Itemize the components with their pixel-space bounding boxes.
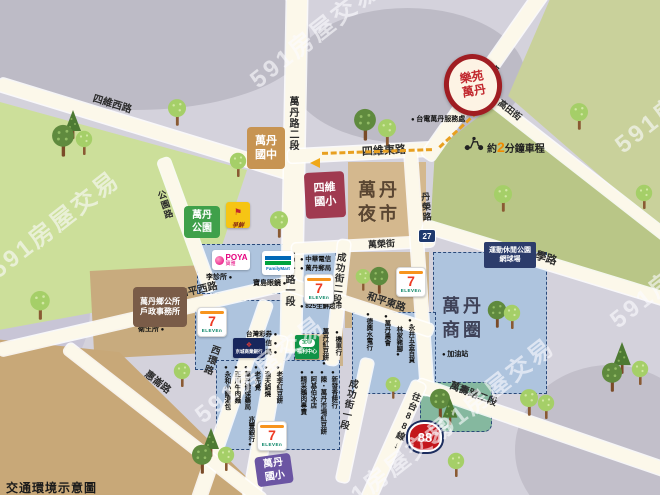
sports-park-line1: 運動休閒公園 bbox=[484, 246, 536, 255]
travel-time-minutes: 2 bbox=[497, 139, 505, 155]
township-office-line1: 萬丹鄉公所 bbox=[133, 297, 187, 307]
poi-yonghe-dumplings: 永和小籠湯包 bbox=[222, 365, 230, 410]
map-title: 交通環境示意圖 bbox=[6, 479, 97, 495]
tree-icon bbox=[536, 394, 556, 420]
township-office-badge: 萬丹鄉公所 戶政事務所 bbox=[133, 287, 187, 327]
poi-gas-station: 加油站 bbox=[442, 351, 468, 359]
poi-clinic-li: 李診所 bbox=[206, 274, 232, 282]
flag-icon bbox=[234, 202, 242, 220]
tree-icon bbox=[384, 376, 402, 400]
county-route-27-shield: 27 bbox=[418, 229, 436, 243]
tree-icon bbox=[216, 446, 236, 472]
poi-825-fresh-market: 825生鮮超市 bbox=[300, 303, 342, 311]
seven-eleven-text: ELEVEn bbox=[401, 288, 422, 293]
poya-circle-icon bbox=[215, 256, 224, 265]
familymart-text: FamilyMart bbox=[266, 266, 290, 271]
sihwei-elem-line2: 國小 bbox=[305, 194, 346, 210]
travel-time-label: 約2分鐘車程 bbox=[487, 139, 545, 155]
seven-eleven-text: ELEVEn bbox=[262, 442, 283, 447]
seven-eleven-text: ELEVEn bbox=[202, 328, 223, 333]
tree-icon bbox=[446, 452, 466, 478]
sihwei-elementary-badge: 四維 國小 bbox=[304, 171, 346, 219]
tree-icon bbox=[228, 152, 248, 178]
junior-high-line1: 萬丹 bbox=[247, 134, 285, 148]
poi-chen-market-redbean-cake: 陳‧萬丹市場紅豆餅 bbox=[318, 370, 326, 435]
sushi-express-logo: 爭鮮 bbox=[226, 202, 250, 228]
pxmart-logo: 全聯 福利中心 bbox=[295, 335, 319, 359]
poi-health-center: 衛生所 bbox=[138, 326, 164, 334]
seven-eleven-text: ELEVEn bbox=[309, 295, 330, 300]
seven-number: 7 bbox=[407, 275, 415, 288]
township-office-line2: 戶政事務所 bbox=[133, 307, 187, 317]
travel-time-suffix: 分鐘車程 bbox=[505, 144, 545, 155]
poi-wandan-redbean-cake: 萬丹紅豆餅 bbox=[320, 328, 328, 367]
sports-park-badge: 運動休閒公園 網球場 bbox=[484, 242, 536, 268]
tree-icon bbox=[440, 398, 460, 426]
junior-high-line2: 國中 bbox=[247, 148, 285, 162]
poi-hardware-store: 永井五金百貨 bbox=[406, 318, 414, 363]
bank-text: 京城商業銀行 bbox=[236, 349, 263, 355]
seven-number: 7 bbox=[208, 315, 216, 328]
poi-fisherman-noodles: 漁夫鍋燒 bbox=[262, 365, 270, 397]
poi-zhengchuan-beef-noodles: 正川牛肉麵 bbox=[232, 365, 240, 404]
bank-emblem-icon: ❖ bbox=[246, 342, 252, 349]
poi-farmers-association: 萬丹農會 bbox=[382, 314, 390, 346]
tree-icon bbox=[630, 360, 650, 386]
tree-icon bbox=[190, 444, 214, 475]
poya-text-zh: 寶雅 bbox=[226, 262, 236, 267]
poya-logo: POYA 寶雅 bbox=[212, 250, 250, 270]
tree-icon bbox=[74, 130, 94, 156]
tree-icon bbox=[502, 304, 522, 330]
seven-eleven-logo: 7 ELEVEn bbox=[257, 421, 287, 451]
tree-icon bbox=[600, 362, 624, 393]
tree-icon bbox=[568, 102, 590, 131]
night-market-line1: 萬丹 bbox=[358, 178, 400, 202]
tree-icon bbox=[352, 108, 378, 142]
tree-icon bbox=[268, 210, 290, 239]
tree-icon bbox=[28, 290, 52, 321]
tree-icon bbox=[50, 124, 76, 158]
poi-goose-restaurant: 精采鵝肉專賣 bbox=[298, 370, 306, 415]
tree-icon bbox=[634, 184, 654, 210]
poi-baodao-optical: 寶島眼鏡 bbox=[253, 280, 286, 288]
map-canvas: 四維西路 公園路 萬丹路二段 萬丹路一段 四維東路 四維東路 高田街 萬榮街 丹… bbox=[0, 0, 660, 495]
business-district-line2: 商圈 bbox=[442, 318, 484, 342]
expressway-88-shield: 88 bbox=[408, 422, 442, 452]
poi-ajibo-ice-shop: 阿基伯冰店 bbox=[308, 370, 316, 409]
sushi-express-text: 爭鮮 bbox=[232, 220, 244, 229]
scooter-icon bbox=[463, 136, 485, 151]
road-label-danrong: 丹榮路 bbox=[420, 192, 431, 223]
poi-linjia-pork-knuckle: 林家豬腳 bbox=[394, 326, 402, 358]
seven-eleven-logo: 7 ELEVEn bbox=[197, 307, 227, 337]
night-market-line2: 夜市 bbox=[358, 202, 400, 226]
night-market-label: 萬丹 夜市 bbox=[358, 178, 400, 227]
business-district-label: 萬丹 商圈 bbox=[442, 294, 484, 343]
travel-time-prefix: 約 bbox=[487, 144, 497, 155]
seven-eleven-logo: 7 ELEVEn bbox=[396, 267, 426, 297]
tree-icon bbox=[376, 118, 398, 147]
poi-taipower-office: 台電萬丹服務處 bbox=[411, 116, 465, 124]
route-arrow-icon bbox=[310, 158, 320, 168]
junior-high-badge: 萬丹 國中 bbox=[247, 127, 285, 169]
poi-mega-bank: 兆豐銀行 bbox=[246, 416, 254, 448]
tree-icon bbox=[368, 266, 390, 295]
wandan-elementary-badge: 萬丹 國小 bbox=[254, 453, 294, 488]
poi-wandan-pharmacy: 萬丹健保藥局 bbox=[242, 365, 250, 410]
road-label-wanrong: 萬榮街 bbox=[368, 239, 395, 249]
tree-icon bbox=[166, 98, 188, 127]
poi-scooter-shop: 機車行 bbox=[333, 330, 341, 356]
poi-wandan-post-office: 萬丹郵局 bbox=[300, 265, 331, 273]
business-district-line1: 萬丹 bbox=[442, 294, 484, 318]
seven-number: 7 bbox=[268, 429, 276, 442]
poi-chunghwa-telecom: 中華電信 bbox=[300, 256, 331, 264]
park-line1: 萬丹 bbox=[184, 209, 220, 222]
poi-xinfa-bakery: 新發香餅行 bbox=[329, 370, 337, 409]
park-badge: 萬丹 公園 bbox=[184, 206, 220, 238]
tree-icon bbox=[172, 362, 192, 388]
poi-plumbing-shop: 德興水電行 bbox=[364, 312, 372, 351]
familymart-logo: FamilyMart bbox=[262, 251, 294, 275]
poi-laoli-redbean-cake: 老李紅豆餅 bbox=[274, 365, 282, 404]
park-line2: 公園 bbox=[184, 222, 220, 235]
project-badge-line2: 萬丹 bbox=[461, 83, 487, 101]
familymart-green-bar bbox=[265, 261, 291, 265]
tree-icon bbox=[492, 184, 514, 213]
poi-laoxianjue-hotpot: 老先覺 bbox=[252, 365, 260, 391]
seven-number: 7 bbox=[315, 282, 323, 295]
road-label-wandan-sec2: 萬丹路二段 bbox=[287, 96, 297, 151]
seven-eleven-logo: 7 ELEVEn bbox=[304, 274, 334, 304]
sports-park-line2: 網球場 bbox=[484, 255, 536, 264]
familymart-blue-bar bbox=[265, 256, 291, 260]
bank-logo: ❖ 京城商業銀行 bbox=[233, 338, 265, 358]
pxmart-oval-text: 全聯 bbox=[299, 339, 315, 347]
pxmart-text: 福利中心 bbox=[297, 348, 317, 355]
